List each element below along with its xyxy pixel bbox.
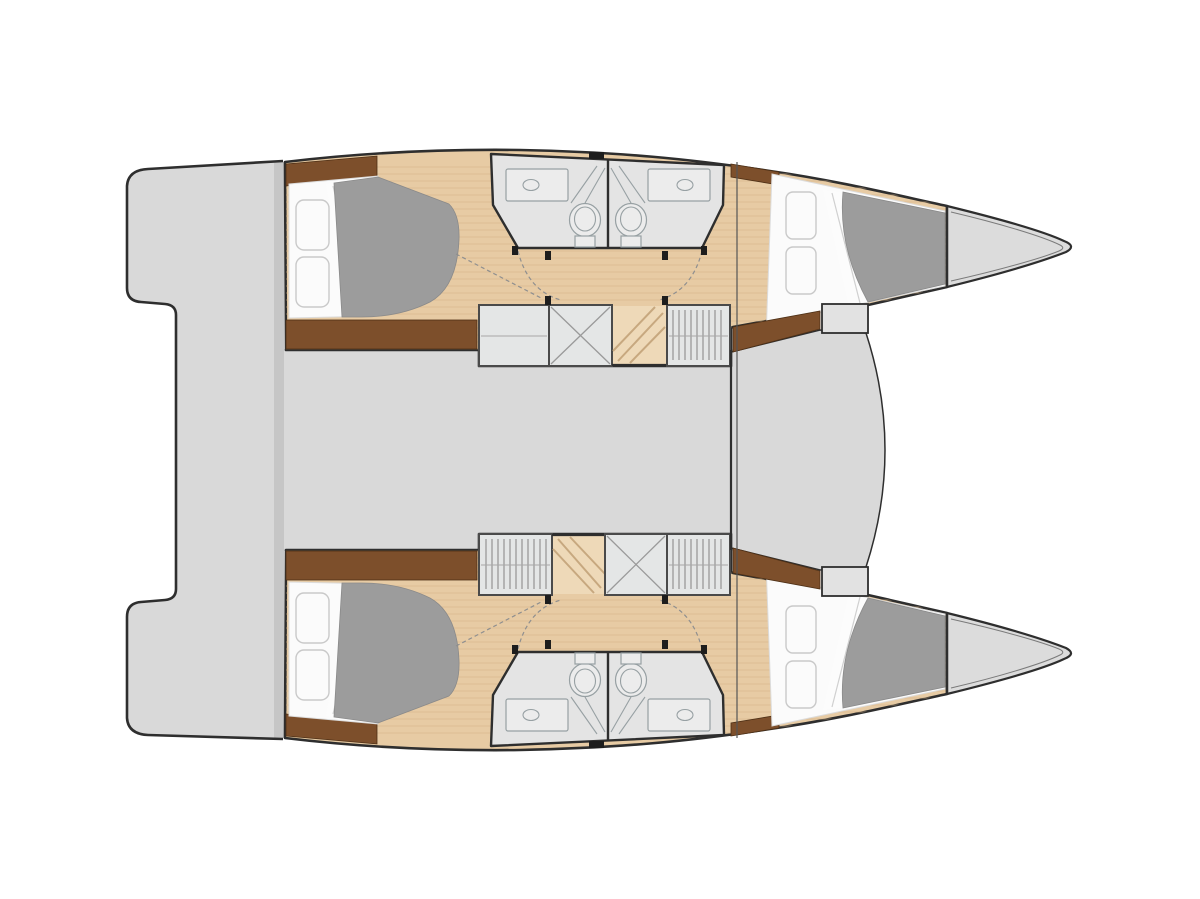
bed-foot-trim xyxy=(286,320,477,349)
door-stop xyxy=(701,246,707,255)
toilet-tank xyxy=(621,236,641,247)
aft-deck-surface xyxy=(127,161,283,739)
pillow xyxy=(786,247,816,294)
saloon xyxy=(284,349,737,551)
pillow xyxy=(296,200,329,250)
door-stop xyxy=(545,595,551,604)
catamaran-floorplan-page xyxy=(0,0,1200,899)
transom-shadow-band xyxy=(274,162,284,738)
door-stop xyxy=(662,595,668,604)
catamaran-floorplan xyxy=(0,0,1200,899)
foredeck xyxy=(731,330,885,570)
cabinets-port-hull xyxy=(479,296,730,366)
cabinets-starboard-hull xyxy=(479,534,730,604)
pillow xyxy=(786,192,816,239)
sink-counter xyxy=(506,169,568,201)
entry-step xyxy=(822,304,868,333)
door-stop xyxy=(512,246,518,255)
door-stop xyxy=(662,296,668,305)
toilet-tank xyxy=(575,236,595,247)
pillow xyxy=(296,257,329,307)
door-stop xyxy=(545,296,551,305)
deck-hatch xyxy=(589,152,604,159)
door-stop xyxy=(662,251,668,260)
door-stop xyxy=(545,251,551,260)
aft-deck xyxy=(127,161,284,739)
sink-counter xyxy=(648,169,710,201)
forepeak xyxy=(947,206,1071,287)
